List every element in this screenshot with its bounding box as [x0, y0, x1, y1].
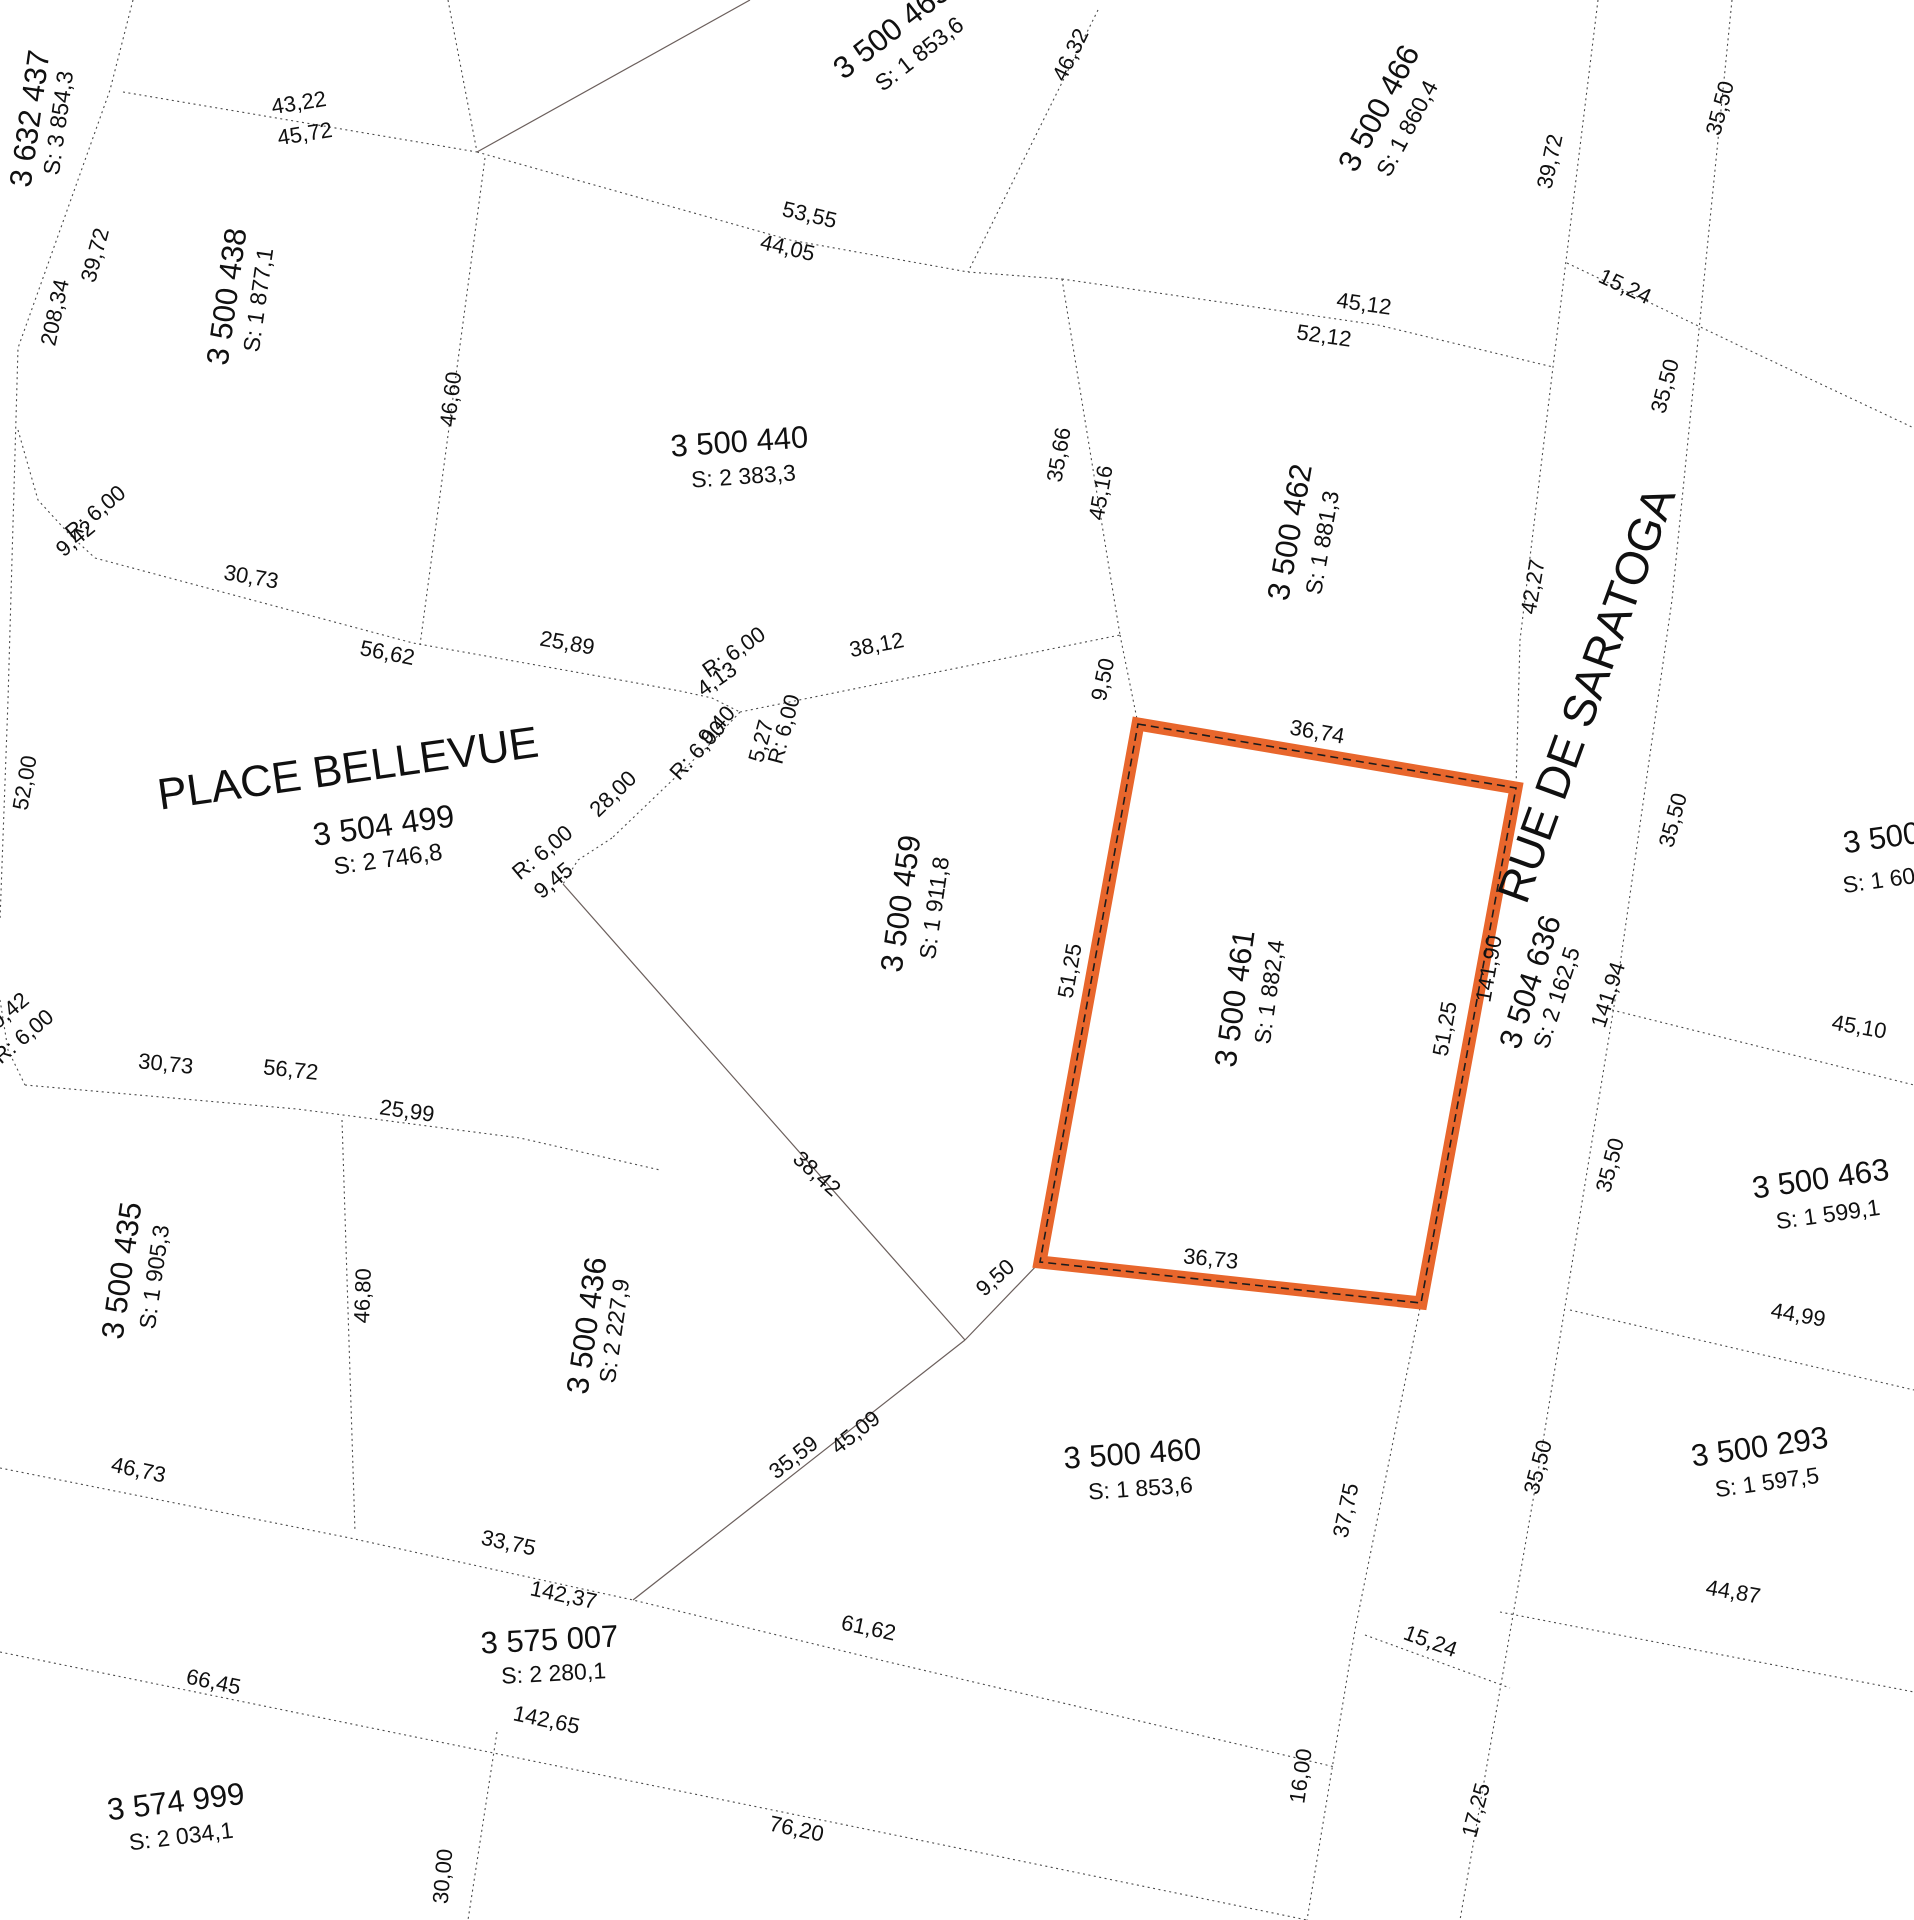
parcel-number-3-500-32: 3 500 — [1841, 815, 1914, 860]
parcel-boundary-line — [1500, 1612, 1914, 1692]
dimension-label-61-62-92: 61,62 — [839, 1610, 898, 1646]
parcel-boundary-line — [468, 1732, 497, 1920]
parcel-boundary-line — [0, 1468, 1335, 1767]
dimension-label-38-42-84: 38,42 — [788, 1146, 846, 1201]
dimension-label-45-10-101: 45,10 — [1830, 1010, 1889, 1044]
dimension-label-35-59-87: 35,59 — [764, 1430, 823, 1484]
dimension-label-16-00-98: 16,00 — [1284, 1747, 1316, 1805]
dimension-label-35-66-52: 35,66 — [1042, 425, 1076, 484]
dimension-label-142-65-94: 142,65 — [511, 1700, 582, 1738]
parcel-number-3-575-007-24: 3 575 007 — [480, 1618, 620, 1660]
dimension-label-39-72-47: 39,72 — [1532, 132, 1568, 191]
dimension-label-51-25-78: 51,25 — [1053, 941, 1087, 1000]
dimension-label-9-50-85: 9,50 — [971, 1254, 1020, 1301]
dimension-label-15-24-45: 15,24 — [1595, 263, 1655, 309]
dimension-label-46-32-42: 46,32 — [1047, 24, 1094, 84]
dimension-label-36-73-83: 36,73 — [1182, 1243, 1239, 1274]
dimension-label-35-50-105: 35,50 — [1519, 1437, 1557, 1497]
parcel-boundary-line — [477, 152, 1062, 279]
dimension-label-141-94-81: 141,94 — [1586, 959, 1631, 1031]
dimension-label-56-62-65: 56,62 — [358, 635, 417, 670]
dimension-label-141-90-79: 141,90 — [1470, 933, 1506, 1004]
dimension-label-39-72-49: 39,72 — [76, 225, 114, 285]
dimension-label-76-20-95: 76,20 — [767, 1811, 826, 1847]
parcel-boundary-line — [1307, 1303, 1421, 1920]
parcel-number-3-500-461-14: 3 500 461 — [1208, 928, 1262, 1069]
parcel-boundary-line — [342, 1120, 355, 1532]
dimension-label-53-55-40: 53,55 — [780, 196, 839, 233]
dimension-label-44-99-102: 44,99 — [1769, 1298, 1828, 1332]
parcel-area-s-1-60-33: S: 1 60 — [1841, 862, 1914, 898]
dimension-label-56-72-74: 56,72 — [262, 1054, 319, 1085]
dimension-label-142-37-91: 142,37 — [528, 1575, 599, 1613]
dimension-label-30-00-96: 30,00 — [428, 1848, 458, 1905]
parcel-area-s-1-853-6-23: S: 1 853,6 — [1087, 1471, 1193, 1504]
parcel-boundary-line — [633, 1340, 965, 1600]
dimension-label-42-27-54: 42,27 — [1516, 557, 1550, 616]
dimension-label-45-72-39: 45,72 — [276, 117, 334, 150]
parcel-number-3-500-460-22: 3 500 460 — [1062, 1431, 1202, 1476]
parcel-boundary-line — [477, 0, 750, 152]
dimension-label-43-22-38: 43,22 — [270, 86, 328, 119]
dimension-label-44-87-103: 44,87 — [1704, 1575, 1763, 1609]
dimension-label-52-00-69: 52,00 — [8, 753, 42, 812]
dimension-label-28-00-70: 28,00 — [584, 765, 641, 821]
dimension-label-37-75-97: 37,75 — [1328, 1481, 1364, 1540]
cadastral-map: 3 632 437S: 3 854,33 500 438S: 1 877,13 … — [0, 0, 1914, 1920]
dimension-label-208-34-50: 208,34 — [35, 277, 73, 348]
dimension-label-52-12-44: 52,12 — [1295, 319, 1353, 351]
dimension-label-17-25-100: 17,25 — [1457, 1780, 1495, 1840]
dimension-label-33-75-90: 33,75 — [479, 1525, 538, 1561]
parcel-boundary-line — [1570, 1310, 1914, 1390]
parcel-area-s-2-383-3-5: S: 2 383,3 — [690, 459, 796, 492]
dimension-label-46-80-88: 46,80 — [349, 1268, 376, 1324]
dimension-label-45-09-86: 45,09 — [826, 1405, 885, 1459]
parcel-boundary-line — [1120, 635, 1138, 724]
parcel-area-s-2-280-1-25: S: 2 280,1 — [501, 1657, 607, 1688]
dimension-label-35-50-104: 35,50 — [1591, 1135, 1629, 1195]
dimension-label-35-50-82: 35,50 — [1654, 790, 1692, 850]
cadastral-map-stage: 3 632 437S: 3 854,33 500 438S: 1 877,13 … — [0, 0, 1914, 1920]
dimension-label-45-12-43: 45,12 — [1335, 287, 1393, 319]
dimension-label-9-50-56: 9,50 — [1086, 656, 1119, 703]
dimension-label-25-89-66: 25,89 — [538, 626, 597, 660]
dimension-label-35-50-46: 35,50 — [1701, 78, 1739, 138]
parcel-boundary-line — [25, 1085, 660, 1170]
dimension-label-r-6-00-61: R: 6,00 — [664, 715, 730, 784]
parcel-boundary-line — [95, 558, 620, 680]
dimension-label-45-16-53: 45,16 — [1084, 463, 1118, 522]
dimension-label-36-74-57: 36,74 — [1288, 715, 1347, 749]
dimension-label-30-73-73: 30,73 — [137, 1048, 194, 1079]
dimension-label-15-24-99: 15,24 — [1400, 1620, 1460, 1662]
dimension-label-51-25-80: 51,25 — [1428, 999, 1462, 1058]
dimension-label-66-45-93: 66,45 — [184, 1664, 243, 1700]
dimension-label-46-60-51: 46,60 — [435, 370, 467, 428]
parcel-number-3-500-440-4: 3 500 440 — [669, 419, 809, 464]
street-name-place-bellevue-34: PLACE BELLEVUE — [154, 718, 541, 820]
dimension-label-30-73-64: 30,73 — [222, 560, 281, 594]
parcel-boundary-line — [448, 0, 477, 152]
dimension-label-44-05-41: 44,05 — [758, 229, 817, 266]
dimension-label-35-50-48: 35,50 — [1646, 356, 1684, 416]
dimension-label-46-73-89: 46,73 — [109, 1452, 168, 1488]
dimension-label-25-99-75: 25,99 — [378, 1094, 436, 1126]
dimension-label-38-12-55: 38,12 — [847, 627, 906, 662]
